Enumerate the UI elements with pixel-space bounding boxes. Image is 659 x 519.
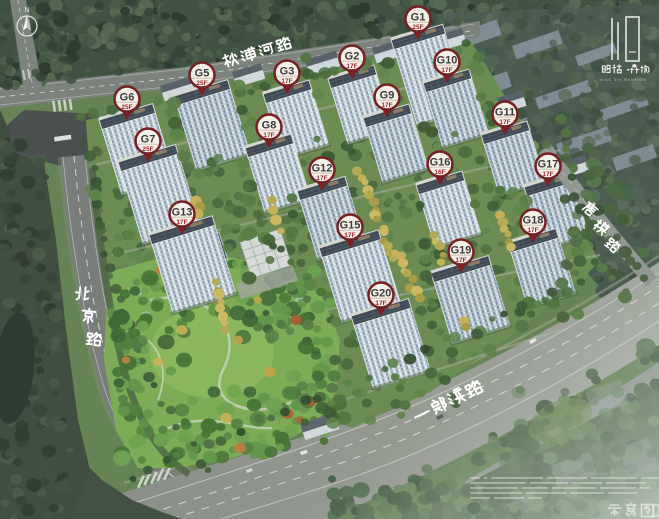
svg-text:G19: G19: [451, 245, 472, 257]
svg-text:17F: 17F: [527, 227, 538, 234]
svg-text:25F: 25F: [121, 104, 132, 111]
svg-text:G17: G17: [538, 159, 559, 171]
svg-text:G16: G16: [430, 157, 451, 169]
svg-text:G8: G8: [262, 120, 277, 132]
svg-text:17F: 17F: [176, 219, 187, 226]
svg-text:25F: 25F: [142, 146, 153, 153]
svg-text:G1: G1: [411, 12, 426, 24]
svg-text:G20: G20: [371, 288, 392, 300]
svg-text:N: N: [24, 7, 29, 14]
svg-text:G2: G2: [345, 51, 360, 63]
svg-text:G6: G6: [120, 92, 135, 104]
svg-text:17F: 17F: [316, 175, 327, 182]
svg-text:G12: G12: [312, 163, 333, 175]
svg-text:G9: G9: [380, 90, 395, 102]
svg-text:MING SHI MANSION: MING SHI MANSION: [600, 78, 647, 82]
svg-text:17F: 17F: [281, 78, 292, 85]
svg-text:G18: G18: [523, 215, 544, 227]
svg-text:17F: 17F: [381, 102, 392, 109]
svg-text:17F: 17F: [346, 63, 357, 70]
svg-text:17F: 17F: [344, 232, 355, 239]
svg-text:17F: 17F: [455, 257, 466, 264]
svg-text:16F: 16F: [434, 169, 445, 176]
svg-text:G11: G11: [495, 107, 515, 119]
svg-text:G13: G13: [172, 207, 193, 219]
svg-text:25F: 25F: [196, 80, 207, 87]
svg-text:17F: 17F: [441, 67, 452, 74]
svg-text:G7: G7: [141, 134, 156, 146]
svg-text:25F: 25F: [412, 24, 423, 31]
svg-text:17F: 17F: [375, 300, 386, 307]
svg-text:17F: 17F: [542, 171, 553, 178]
svg-text:17F: 17F: [499, 119, 510, 126]
svg-text:G10: G10: [437, 55, 458, 67]
svg-text:G3: G3: [280, 66, 295, 78]
svg-text:17F: 17F: [263, 132, 274, 139]
svg-text:G5: G5: [195, 68, 210, 80]
svg-text:G15: G15: [340, 220, 361, 232]
